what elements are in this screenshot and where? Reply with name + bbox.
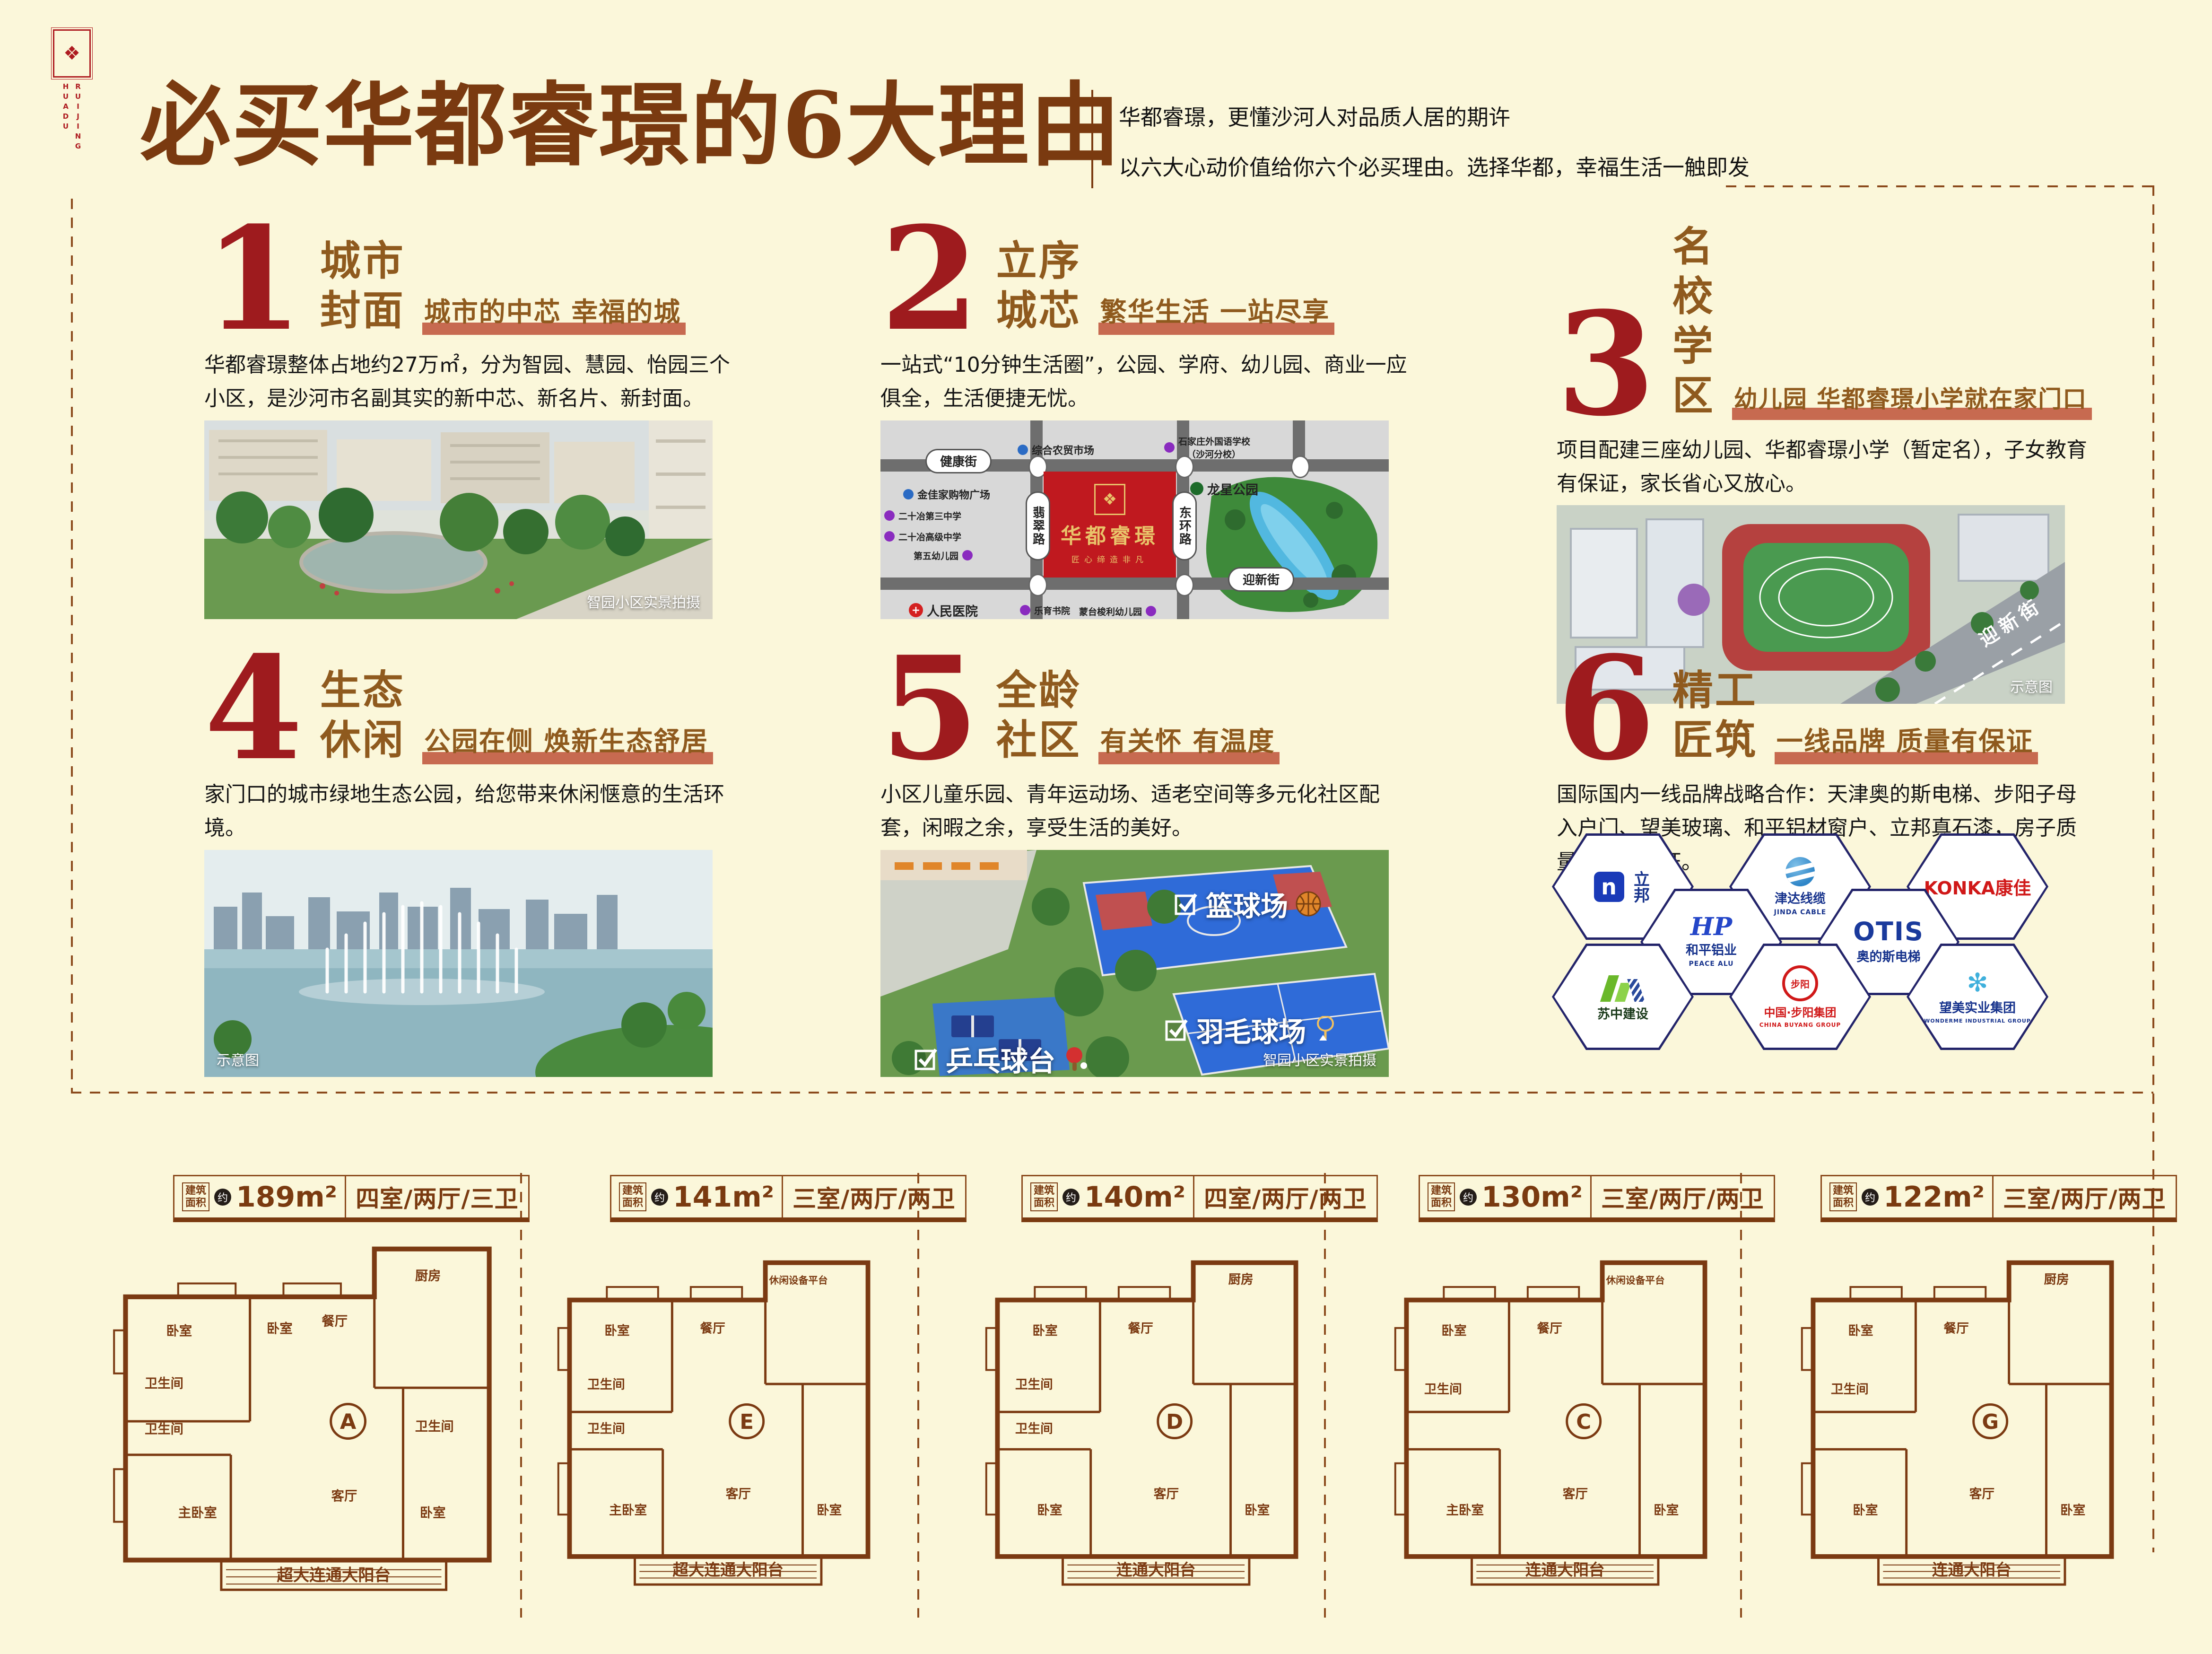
label-basketball: 篮球场	[1174, 884, 1321, 924]
svg-text:客厅: 客厅	[726, 1487, 751, 1502]
project-slogan: 匠心缔造非凡	[1071, 553, 1148, 565]
section3-title-line2: 学区	[1672, 322, 1715, 421]
section1-header: 1 城市 封面 城市的中芯 幸福的城	[204, 222, 739, 336]
svg-text:厨房: 厨房	[1228, 1272, 1254, 1287]
section3-title: 名校 学区	[1672, 222, 1715, 421]
svg-text:卫生间: 卫生间	[587, 1377, 625, 1392]
area-prefix: 建筑 面积	[619, 1182, 646, 1211]
street-label-west: 翡翠路	[1026, 491, 1050, 560]
section5-body: 小区儿童乐园、青年运动场、适老空间等多元化社区配套，闲暇之余，享受生活的美好。	[880, 778, 1412, 845]
poi-hospital: + 人民医院	[909, 601, 978, 619]
kindergarten-icon	[1146, 606, 1156, 616]
developer-emblem-icon: ❖	[53, 29, 91, 78]
svg-text:卫生间: 卫生间	[145, 1422, 183, 1436]
plan3-layout: 四室/两厅/两卫	[1193, 1176, 1376, 1217]
section2-title: 立序 城芯	[996, 236, 1081, 336]
checkbox-icon	[1164, 1017, 1189, 1042]
approx-badge: 约	[1460, 1189, 1477, 1206]
section3-body: 项目配建三座幼儿园、华都睿璟小学（暂定名），子女教育有保证，家长省心又放心。	[1557, 433, 2089, 501]
dashed-border-left	[71, 199, 73, 1093]
section2-header: 2 立序 城芯 繁华生活 一站尽享	[880, 222, 1415, 336]
plan3-area: 140m²	[1084, 1181, 1185, 1214]
area-prefix: 建筑 面积	[1030, 1182, 1058, 1211]
area-prefix: 建筑 面积	[1829, 1182, 1857, 1211]
plan2-balcony: 超大连通大阳台	[672, 1560, 784, 1579]
label-badminton-text: 羽毛球场	[1196, 1010, 1306, 1050]
section-location: 2 立序 城芯 繁华生活 一站尽享 一站式“10分钟生活圈”，公园、学府、幼儿园…	[880, 222, 1415, 619]
svg-text:休闲设备平台: 休闲设备平台	[1606, 1275, 1665, 1286]
svg-text:卫生间: 卫生间	[415, 1419, 454, 1434]
plan2-area: 141m²	[673, 1181, 774, 1214]
section1-title: 城市 封面	[320, 236, 405, 336]
brand-logos: n立邦 津达线缆 JINDA CABLE KONKA康佳 HP 和平铝业 PEA…	[1552, 833, 2105, 1052]
location-map: ❖ 华都睿璟 匠心缔造非凡 健康街 迎新街 翡翠路 东环路 综合农贸市场 石家庄…	[880, 420, 1389, 619]
poi-kindergarten5-label: 第五幼儿园	[914, 549, 958, 562]
svg-text:卫生间: 卫生间	[1424, 1382, 1462, 1397]
section2-tagline: 繁华生活 一站尽享	[1098, 291, 1335, 335]
buyang-icon: 步阳	[1782, 965, 1818, 1001]
approx-badge: 约	[214, 1189, 231, 1206]
section2-title-line2: 城芯	[996, 286, 1081, 336]
approx-badge: 约	[1862, 1189, 1879, 1206]
plan5-label: 建筑 面积约122m² 三室/两厅/两卫	[1820, 1175, 2177, 1222]
project-emblem-icon: ❖	[1094, 484, 1125, 515]
svg-text:休闲设备平台: 休闲设备平台	[769, 1275, 828, 1286]
plan5-layout: 三室/两厅/两卫	[1992, 1176, 2176, 1217]
hospital-cross-icon: +	[909, 603, 923, 617]
peace-alu-label-en: PEACE ALU	[1689, 960, 1734, 968]
plan5-letter: G	[1982, 1410, 1999, 1434]
section4-title-line2: 休闲	[320, 716, 405, 765]
section3-header: 3 名校 学区 幼儿园 华都睿璟小学就在家门口	[1557, 222, 2091, 421]
plan2-letter: E	[740, 1410, 754, 1434]
plan3-letter: D	[1166, 1410, 1183, 1434]
section1-title-line2: 封面	[320, 286, 405, 336]
section1-number: 1	[204, 222, 303, 336]
brand-suzhong: 苏中建设	[1552, 944, 1694, 1050]
svg-text:餐厅: 餐厅	[700, 1321, 725, 1336]
section1-tagline: 城市的中芯 幸福的城	[422, 291, 686, 335]
svg-text:卫生间: 卫生间	[1015, 1422, 1053, 1436]
plan1-balcony: 超大连通大阳台	[277, 1566, 391, 1585]
poi-montessori: 蒙台梭利幼儿园	[1079, 605, 1156, 618]
poi-market: 综合农贸市场	[1018, 442, 1094, 457]
peace-alu-icon: HP	[1690, 916, 1732, 938]
svg-text:卧室: 卧室	[817, 1503, 842, 1518]
section3-title-line1: 名校	[1672, 222, 1715, 322]
plan4-balcony: 连通大阳台	[1525, 1560, 1605, 1579]
basketball-icon	[1296, 891, 1321, 917]
approx-badge: 约	[651, 1189, 668, 1206]
section2-title-line1: 立序	[996, 236, 1081, 286]
label-pingpong-text: 乒乓球台	[946, 1039, 1055, 1077]
plan4-letter: C	[1576, 1410, 1591, 1434]
poi-montessori-label: 蒙台梭利幼儿园	[1079, 605, 1142, 618]
page-title: 必买华都睿璟的6大理由	[140, 76, 1122, 175]
section5-photo: 篮球场 羽毛球场 乒乓球台 智园小区实景拍摄	[880, 850, 1389, 1077]
wonderme-label-en: WONDERME INDUSTRIAL GROUP	[1924, 1018, 2031, 1024]
poi-kindergarten5: 第五幼儿园	[914, 549, 973, 562]
academy-icon	[1020, 605, 1030, 615]
area-prefix: 建筑 面积	[182, 1182, 209, 1211]
wonderme-label-cn: 望美实业集团	[1939, 998, 2016, 1016]
park-lake-illustration	[204, 850, 713, 1077]
svg-text:卧室: 卧室	[1441, 1324, 1466, 1339]
jinda-globe-icon	[1785, 857, 1815, 886]
section2-body: 一站式“10分钟生活圈”，公园、学府、幼儿园、商业一应俱全，生活便捷无忧。	[880, 348, 1412, 416]
svg-text:客厅: 客厅	[1563, 1487, 1588, 1502]
section-community: 5 全龄 社区 有关怀 有温度 小区儿童乐园、青年运动场、适老空间等多元化社区配…	[880, 652, 1415, 1077]
suzhong-icon	[1604, 971, 1641, 1002]
plan4-area: 130m²	[1481, 1181, 1583, 1214]
brand-wonderme: ✻ 望美实业集团 WONDERME INDUSTRIAL GROUP	[1907, 944, 2048, 1050]
svg-text:餐厅: 餐厅	[1537, 1321, 1562, 1336]
market-icon	[1018, 445, 1028, 455]
poster-page: ❖ HUADU RUIJING 必买华都睿璟的6大理由 华都睿璟，更懂沙河人对品…	[0, 0, 2212, 1654]
section6-number: 6	[1557, 652, 1655, 765]
plan1-drawing: A 卧室 卧室 餐厅 厨房 卫生间 卫生间 主卧室 客厅 卫生间 卧室 超大连通…	[106, 1230, 504, 1613]
svg-text:客厅: 客厅	[1969, 1487, 1994, 1502]
plan3-label: 建筑 面积约140m² 四室/两厅/两卫	[1021, 1175, 1378, 1222]
nippon-icon: n	[1594, 872, 1624, 902]
section4-title-line1: 生态	[320, 666, 405, 716]
svg-text:客厅: 客厅	[331, 1488, 357, 1504]
label-badminton: 羽毛球场	[1164, 1010, 1337, 1050]
svg-text:主卧室: 主卧室	[609, 1503, 647, 1518]
label-pingpong: 乒乓球台	[914, 1039, 1088, 1077]
poi-school3-label: 二十冶第三中学	[898, 509, 961, 522]
section6-title: 精工 匠筑	[1672, 666, 1758, 765]
section6-tagline: 一线品牌 质量有保证	[1775, 720, 2038, 764]
svg-text:卧室: 卧室	[604, 1324, 629, 1339]
section3-tagline: 幼儿园 华都睿璟小学就在家门口	[1732, 380, 2092, 420]
poi-market-label: 综合农贸市场	[1032, 442, 1094, 457]
section5-caption: 智园小区实景拍摄	[1263, 1049, 1376, 1069]
school-icon	[1164, 442, 1175, 453]
section1-body: 华都睿璟整体占地约27万㎡，分为智园、慧园、怡园三个小区，是沙河市名副其实的新中…	[204, 348, 736, 416]
page-subtitle: 华都睿璟，更懂沙河人对品质人居的期许 以六大心动价值给你六个必买理由。选择华都，…	[1119, 93, 1750, 193]
svg-text:卧室: 卧室	[1032, 1324, 1057, 1339]
otis-label: OTIS	[1853, 919, 1924, 945]
dashed-border-right	[2152, 185, 2154, 1552]
poi-hospital-label: 人民医院	[927, 601, 978, 619]
title-divider	[1091, 90, 1093, 188]
plan5-area: 122m²	[1883, 1181, 1985, 1214]
svg-text:厨房: 厨房	[2044, 1272, 2069, 1287]
poi-school-high-label: 二十冶高级中学	[898, 530, 961, 543]
svg-text:餐厅: 餐厅	[1944, 1321, 1969, 1336]
section5-number: 5	[880, 652, 979, 765]
section5-title-line2: 社区	[996, 716, 1081, 765]
buyang-label-cn: 中国·步阳集团	[1764, 1003, 1836, 1020]
section5-tagline: 有关怀 有温度	[1098, 720, 1280, 764]
poi-park-label: 龙星公园	[1207, 480, 1258, 498]
badminton-icon	[1314, 1016, 1337, 1043]
suzhong-label: 苏中建设	[1597, 1004, 1648, 1022]
plan5-balcony: 连通大阳台	[1932, 1560, 2012, 1579]
developer-logo-text: HUADU RUIJING	[61, 82, 82, 152]
svg-text:餐厅: 餐厅	[322, 1314, 348, 1329]
section5-title: 全龄 社区	[996, 666, 1081, 765]
svg-text:卧室: 卧室	[1848, 1324, 1873, 1339]
svg-text:卫生间: 卫生间	[1831, 1382, 1869, 1397]
plan1-area: 189m²	[236, 1181, 337, 1214]
poi-school-foreign-label: 石家庄外国语学校（沙河分校）	[1178, 435, 1250, 460]
section4-body: 家门口的城市绿地生态公园，给您带来休闲惬意的生活环境。	[204, 778, 736, 845]
plan2-layout: 三室/两厅/两卫	[782, 1176, 965, 1217]
plan-separator	[1324, 1173, 1326, 1618]
section1-title-line1: 城市	[320, 236, 405, 286]
section6-title-line2: 匠筑	[1672, 716, 1758, 765]
pingpong-icon	[1063, 1046, 1088, 1072]
plan4-drawing: C 休闲设备平台 卧室 餐厅 卫生间 主卧室 客厅 卧室 连通大阳台	[1388, 1230, 1724, 1613]
svg-text:卫生间: 卫生间	[587, 1422, 625, 1436]
svg-text:卧室: 卧室	[1245, 1503, 1270, 1518]
section4-header: 4 生态 休闲 公园在侧 焕新生态舒居	[204, 652, 739, 765]
park-icon	[1190, 482, 1203, 495]
poi-school3: 二十冶第三中学	[884, 509, 961, 522]
subtitle-line1: 华都睿璟，更懂沙河人对品质人居的期许	[1119, 93, 1750, 143]
svg-text:卧室: 卧室	[166, 1323, 192, 1339]
plan3-drawing: D 厨房 卧室 餐厅 卫生间 卫生间 卧室 客厅 卧室 连通大阳台	[979, 1230, 1315, 1613]
poi-shopping: 金佳家购物广场	[903, 487, 990, 502]
svg-text:卧室: 卧室	[1037, 1503, 1062, 1518]
svg-text:卧室: 卧室	[1853, 1503, 1878, 1518]
section1-photo: 智园小区实景拍摄	[204, 420, 713, 619]
poi-academy: 乐育书院	[1020, 604, 1070, 617]
buyang-label-en: CHINA BUYANG GROUP	[1759, 1022, 1841, 1028]
plan1-label: 建筑 面积约189m² 四室/两厅/三卫	[173, 1175, 530, 1222]
project-block: ❖ 华都睿璟 匠心缔造非凡	[1044, 472, 1176, 578]
svg-text:主卧室: 主卧室	[178, 1505, 217, 1520]
poi-school-high: 二十冶高级中学	[884, 530, 961, 543]
map-road-south	[880, 578, 1389, 590]
approx-badge: 约	[1062, 1189, 1080, 1206]
plan1-letter: A	[340, 1409, 357, 1434]
svg-text:卫生间: 卫生间	[1015, 1377, 1053, 1392]
plan4-label: 建筑 面积约130m² 三室/两厅/两卫	[1419, 1175, 1775, 1222]
logo-text-col2: RUIJING	[74, 82, 82, 152]
section5-title-line1: 全龄	[996, 666, 1081, 716]
poi-shopping-label: 金佳家购物广场	[917, 487, 990, 502]
svg-text:卧室: 卧室	[2060, 1503, 2085, 1518]
brand-buyang: 步阳 中国·步阳集团 CHINA BUYANG GROUP	[1729, 944, 1871, 1050]
logo-text-col1: HUADU	[61, 82, 70, 152]
section1-photo-caption: 智园小区实景拍摄	[587, 591, 700, 612]
shopping-icon	[903, 489, 914, 499]
checkbox-icon	[914, 1047, 938, 1071]
section3-number: 3	[1557, 307, 1655, 421]
subtitle-line2: 以六大心动价值给你六个必买理由。选择华都，幸福生活一触即发	[1119, 143, 1750, 193]
poi-academy-label: 乐育书院	[1034, 604, 1070, 617]
street-label-north: 健康街	[925, 449, 992, 473]
plan5-drawing: G 厨房 卧室 餐厅 卫生间 卧室 客厅 卧室 连通大阳台	[1794, 1230, 2130, 1613]
poi-park: 龙星公园	[1190, 480, 1258, 498]
svg-text:卧室: 卧室	[420, 1505, 446, 1520]
section4-title: 生态 休闲	[320, 666, 405, 765]
plan-separator	[520, 1173, 522, 1618]
svg-text:餐厅: 餐厅	[1128, 1321, 1153, 1336]
section6-title-line1: 精工	[1672, 666, 1758, 716]
section6-header: 6 精工 匠筑 一线品牌 质量有保证	[1557, 652, 2091, 765]
plan-separator	[1740, 1173, 1742, 1618]
street-label-south: 迎新街	[1228, 567, 1294, 592]
developer-logo: ❖ HUADU RUIJING	[53, 29, 91, 152]
svg-text:厨房: 厨房	[415, 1268, 441, 1283]
plan3-balcony: 连通大阳台	[1116, 1560, 1196, 1579]
section5-header: 5 全龄 社区 有关怀 有温度	[880, 652, 1415, 765]
wonderme-icon: ✻	[1967, 970, 1988, 996]
section4-number: 4	[204, 652, 303, 765]
plan4-layout: 三室/两厅/两卫	[1590, 1176, 1774, 1217]
kindergarten-icon	[962, 550, 973, 560]
school-icon	[884, 510, 895, 521]
section2-number: 2	[880, 222, 979, 336]
plan-separator	[917, 1173, 919, 1618]
plan2-drawing: E 休闲设备平台 卧室 餐厅 卫生间 卫生间 主卧室 客厅 卧室 超大连通大阳台	[551, 1230, 887, 1613]
community-photo-illustration	[204, 420, 713, 619]
svg-text:卫生间: 卫生间	[145, 1376, 183, 1391]
dashed-border-bottom	[71, 1092, 2153, 1094]
street-label-east: 东环路	[1172, 491, 1197, 560]
svg-text:卧室: 卧室	[267, 1321, 293, 1336]
svg-text:主卧室: 主卧室	[1446, 1503, 1484, 1518]
map-node	[1175, 574, 1194, 596]
plan1-layout: 四室/两厅/三卫	[345, 1176, 528, 1217]
section4-caption: 示意图	[217, 1049, 259, 1069]
map-node	[1291, 455, 1310, 478]
svg-text:卧室: 卧室	[1654, 1503, 1679, 1518]
project-name: 华都睿璟	[1061, 519, 1159, 549]
svg-text:客厅: 客厅	[1154, 1487, 1179, 1502]
label-basketball-text: 篮球场	[1206, 884, 1288, 924]
section-city-cover: 1 城市 封面 城市的中芯 幸福的城 华都睿璟整体占地约27万㎡，分为智园、慧园…	[204, 222, 739, 619]
poi-school-foreign: 石家庄外国语学校（沙河分校）	[1164, 435, 1250, 460]
section-ecology: 4 生态 休闲 公园在侧 焕新生态舒居 家门口的城市绿地生态公园，给您带来休闲惬…	[204, 652, 739, 1077]
plan2-label: 建筑 面积约141m² 三室/两厅/两卫	[610, 1175, 967, 1222]
section4-photo: 示意图	[204, 850, 713, 1077]
checkbox-icon	[1174, 892, 1198, 916]
dashed-border-top	[1726, 185, 2154, 187]
area-prefix: 建筑 面积	[1428, 1182, 1455, 1211]
section4-tagline: 公园在侧 焕新生态舒居	[422, 720, 714, 764]
school-icon	[884, 531, 895, 542]
